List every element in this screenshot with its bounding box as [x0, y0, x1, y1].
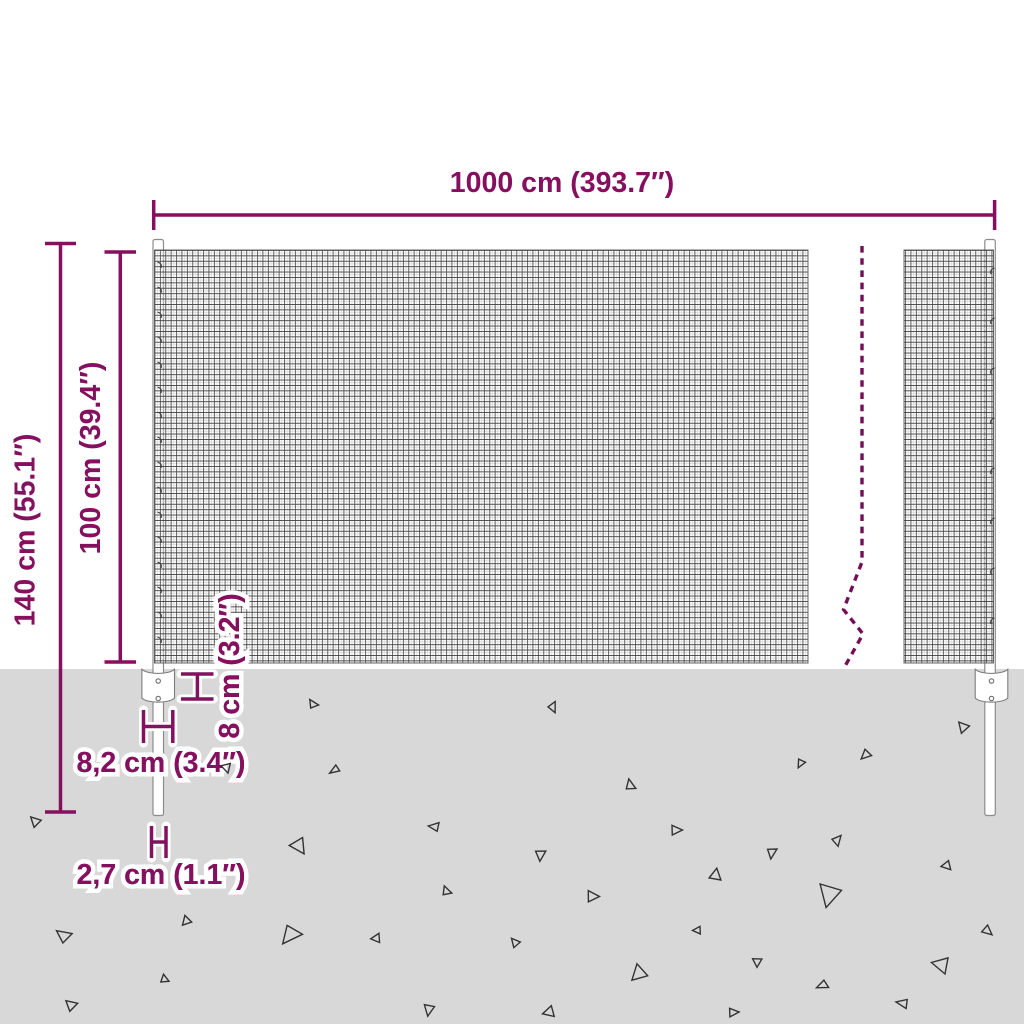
- svg-text:2,7 cm (1.1″): 2,7 cm (1.1″): [77, 859, 246, 891]
- svg-text:1000 cm (393.7″): 1000 cm (393.7″): [450, 167, 674, 199]
- svg-text:8 cm (3.2″): 8 cm (3.2″): [214, 593, 246, 738]
- svg-text:100 cm (39.4″): 100 cm (39.4″): [75, 362, 107, 555]
- svg-text:140 cm (55.1″): 140 cm (55.1″): [10, 434, 42, 627]
- svg-text:8,2 cm (3.4″): 8,2 cm (3.4″): [77, 747, 246, 779]
